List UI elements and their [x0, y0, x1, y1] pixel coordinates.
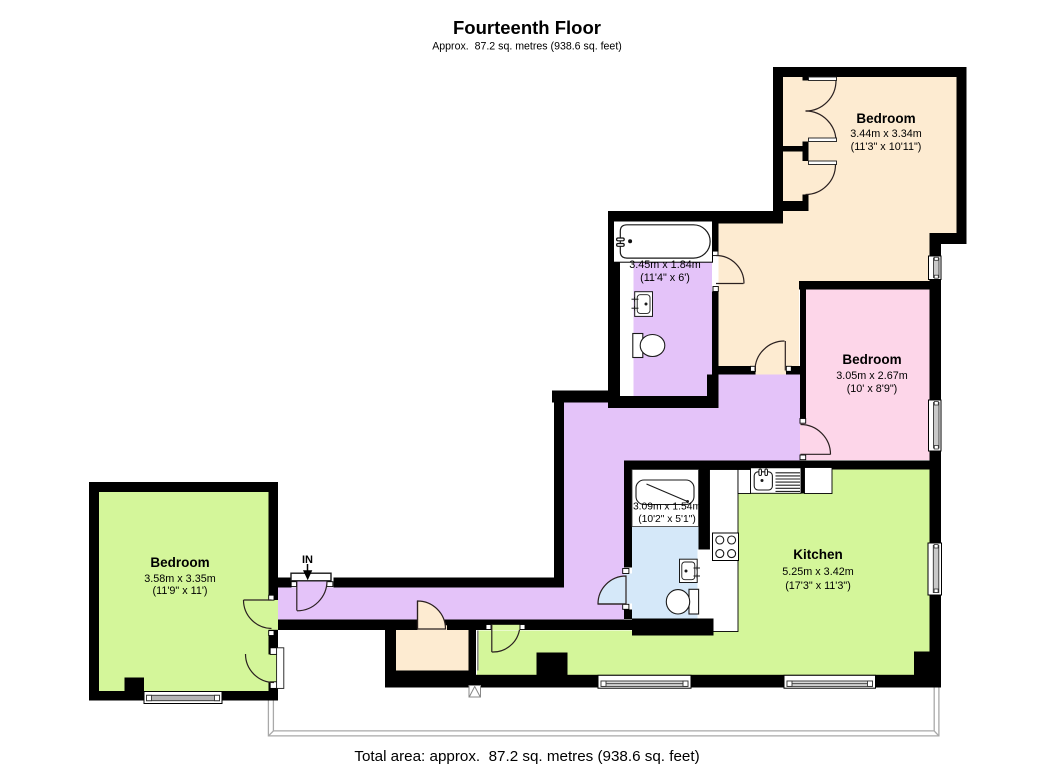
- svg-text:(11'3" x 10'11"): (11'3" x 10'11"): [851, 141, 922, 153]
- svg-text:3.44m x 3.34m: 3.44m x 3.34m: [850, 128, 921, 140]
- svg-text:Total area: approx. 87.2 sq.: Total area: approx. 87.2 sq. metres (938…: [354, 748, 699, 765]
- svg-text:Bedroom: Bedroom: [842, 352, 901, 367]
- svg-text:(10' x 8'9"): (10' x 8'9"): [847, 383, 898, 395]
- svg-text:5.25m x 3.42m: 5.25m x 3.42m: [782, 566, 853, 578]
- svg-text:3.45m x 1.84m: 3.45m x 1.84m: [629, 259, 700, 271]
- svg-text:(11'9" x 11'): (11'9" x 11'): [153, 585, 208, 597]
- svg-text:(17'3" x 11'3"): (17'3" x 11'3"): [785, 580, 851, 592]
- svg-text:Bedroom: Bedroom: [856, 111, 915, 126]
- svg-text:3.09m x 1.54m: 3.09m x 1.54m: [633, 502, 701, 513]
- svg-text:3.05m x 2.67m: 3.05m x 2.67m: [836, 370, 907, 382]
- svg-text:Kitchen: Kitchen: [793, 547, 843, 562]
- svg-text:Fourteenth Floor: Fourteenth Floor: [453, 17, 601, 38]
- svg-text:(11'4" x 6'): (11'4" x 6'): [640, 272, 690, 284]
- svg-text:(10'2" x 5'1"): (10'2" x 5'1"): [638, 514, 696, 525]
- svg-text:Approx. 87.2 sq. metres (938.: Approx. 87.2 sq. metres (938.6 sq. feet): [432, 41, 622, 53]
- svg-text:Bedroom: Bedroom: [150, 555, 209, 570]
- svg-text:3.58m x 3.35m: 3.58m x 3.35m: [144, 573, 215, 585]
